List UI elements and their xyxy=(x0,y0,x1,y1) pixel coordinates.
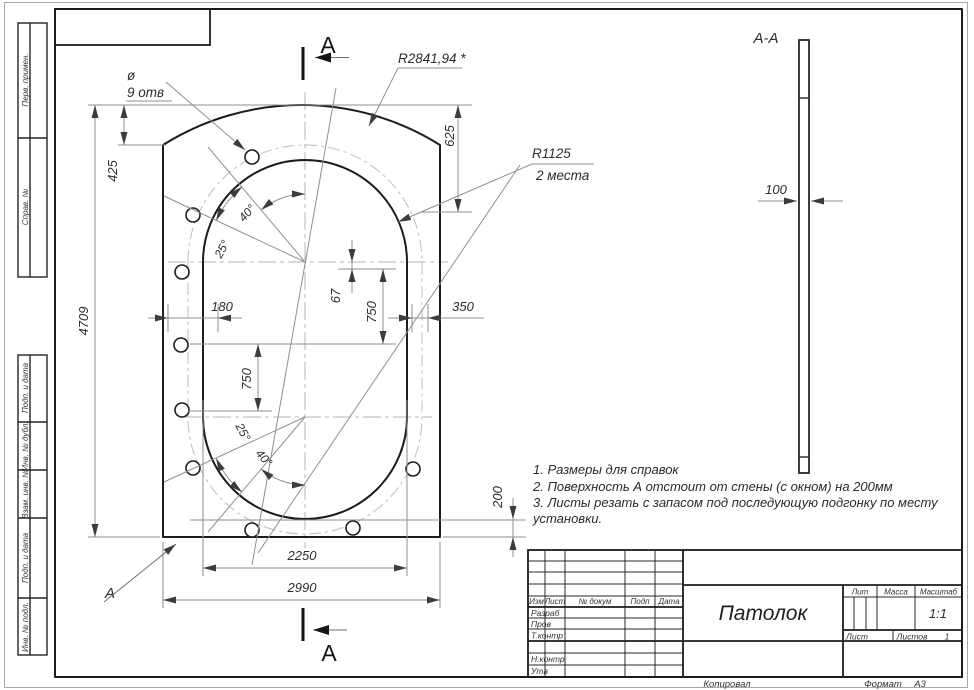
dim-bottom-offset: 200 xyxy=(490,485,505,508)
dim-pitch-left: 750 xyxy=(239,367,254,389)
tb-listov-label: Листов xyxy=(896,632,929,642)
section-letter-bottom: А xyxy=(321,640,337,666)
drawing-canvas: Перв. примен. Справ. № Подп. и дата Инв.… xyxy=(0,0,974,690)
section-letter-top: А xyxy=(320,32,336,58)
tb-scale-value: 1:1 xyxy=(929,606,947,621)
drawing-sheet: Перв. примен. Справ. № Подп. и дата Инв.… xyxy=(0,0,974,690)
hole-count-label: 9 отв xyxy=(127,85,164,100)
kopiroval-label: Копировал xyxy=(703,679,751,690)
hole xyxy=(175,265,189,279)
tb-lit-label: Лит xyxy=(851,588,869,597)
tb-row-tkontr: Т.контр xyxy=(531,631,563,641)
margin-label-vzam-inv: Взам. инв. № xyxy=(21,469,30,519)
note-line-3: 3. Листы резать с запасом под последующу… xyxy=(533,495,939,510)
surface-a-label: А xyxy=(104,585,115,602)
hole xyxy=(175,403,189,417)
tb-col-list: Лист xyxy=(544,597,566,606)
tb-row-utv: Утв xyxy=(530,666,549,676)
tb-col-izm: Изм xyxy=(529,597,544,606)
margin-label-perv-primen: Перв. примен. xyxy=(21,53,30,106)
hole xyxy=(245,150,259,164)
note-line-1: 1. Размеры для справок xyxy=(533,462,679,477)
hole xyxy=(186,461,200,475)
margin-label-inv-dubl: Инв. № дубл. xyxy=(21,421,30,470)
tb-list-label: Лист xyxy=(845,632,868,642)
radius-oval-places: 2 места xyxy=(535,168,590,183)
radius-oval-label: R1125 xyxy=(532,146,571,161)
hole xyxy=(174,338,188,352)
hole xyxy=(406,462,420,476)
dim-right-gap: 350 xyxy=(452,299,474,314)
section-plate-profile xyxy=(799,40,809,473)
dim-overall-height: 4709 xyxy=(76,307,91,336)
radius-arc-label: R2841,94 * xyxy=(398,51,466,66)
format-value: А3 xyxy=(913,679,926,690)
section-view-title: А-А xyxy=(752,30,778,47)
dim-center-offset: 67 xyxy=(328,288,343,303)
format-label: Формат xyxy=(864,679,902,690)
tb-row-prov: Пров xyxy=(531,619,552,629)
tb-row-nkontr: Н.контр xyxy=(531,654,565,664)
tb-scale-label: Масштаб xyxy=(920,588,958,597)
margin-label-sprav-no: Справ. № xyxy=(21,188,30,225)
part-title: Патолок xyxy=(719,602,809,625)
tb-listov-value: 1 xyxy=(945,632,950,642)
tb-col-dokum: № докум xyxy=(578,597,612,606)
dim-pitch-right: 750 xyxy=(364,300,379,322)
margin-label-podp-data-2: Подп. и дата xyxy=(21,532,30,583)
tb-col-data: Дата xyxy=(657,597,680,606)
tb-massa-label: Масса xyxy=(884,588,908,597)
dim-arc-drop: 625 xyxy=(442,124,457,146)
tb-row-razrab: Разраб xyxy=(531,608,561,618)
note-line-2: 2. Поверхность А отстоит от стены (с окн… xyxy=(532,479,893,494)
tb-col-podp: Подп xyxy=(630,597,650,606)
dim-opening-width: 2250 xyxy=(287,548,318,563)
dim-top-offset: 425 xyxy=(105,159,120,181)
dim-thickness: 100 xyxy=(765,182,787,197)
hole xyxy=(346,521,360,535)
dim-hole-edge: 180 xyxy=(211,299,233,314)
dim-overall-width: 2990 xyxy=(287,580,318,595)
margin-label-inv-podl: Инв. № подл. xyxy=(21,602,30,652)
hole-diameter-symbol: ø xyxy=(127,68,135,83)
margin-label-podp-data-1: Подп. и дата xyxy=(21,362,30,413)
note-line-4: установки. xyxy=(532,511,602,526)
